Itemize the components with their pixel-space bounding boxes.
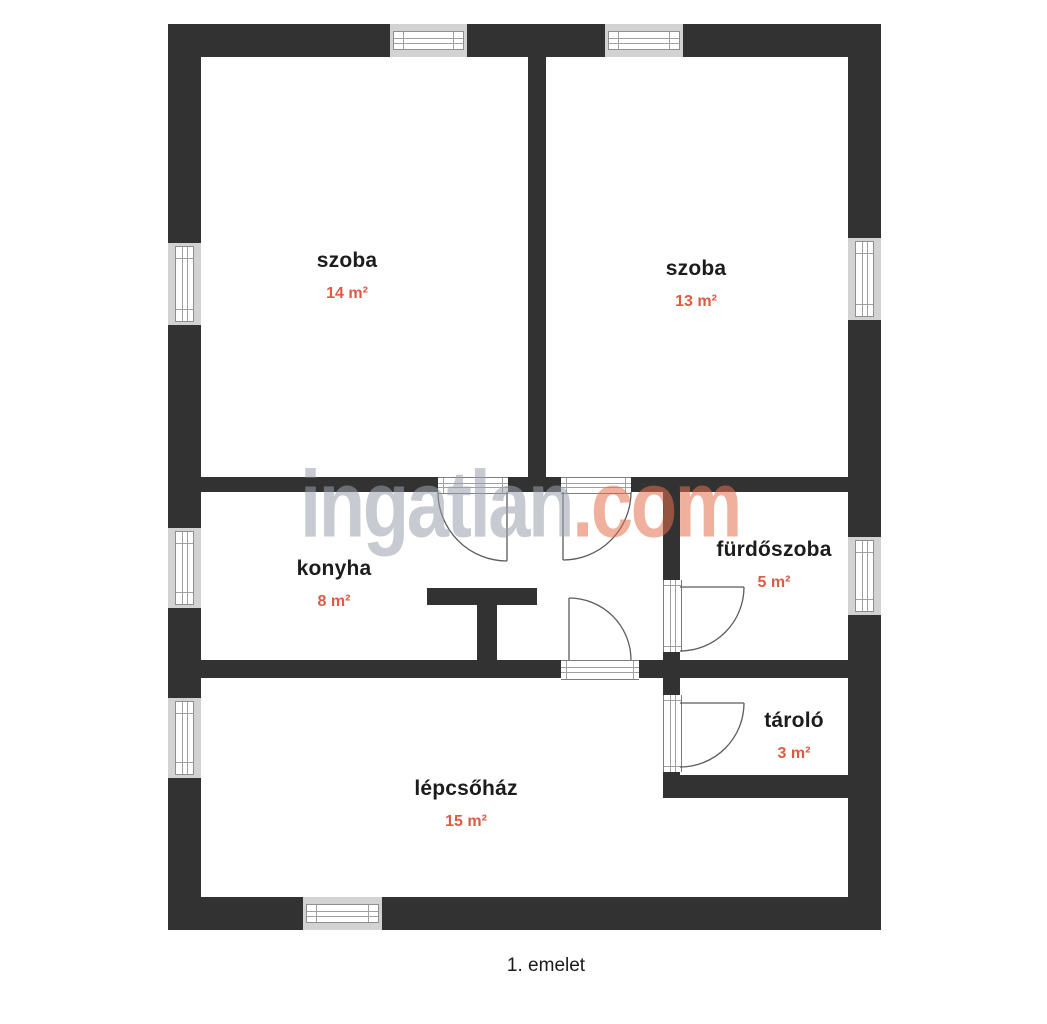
- room-name: szoba: [317, 249, 378, 273]
- window-mullion: [176, 592, 193, 593]
- window-mullion: [176, 258, 193, 259]
- room-label-szoba-14: szoba 14 m²: [317, 249, 378, 303]
- window-mullion: [856, 253, 873, 254]
- watermark-brand-text: ingatlan: [300, 452, 572, 558]
- room-label-szoba-13: szoba 13 m²: [666, 257, 727, 311]
- window-mullion: [856, 599, 873, 600]
- window-mullion: [670, 695, 671, 772]
- door-opening: [561, 660, 639, 680]
- wall-segment: [427, 588, 537, 605]
- room-area: 13 m²: [666, 293, 727, 311]
- window-mullion: [176, 762, 193, 763]
- window-mullion: [664, 766, 681, 767]
- window-mullion: [633, 661, 634, 679]
- window-mullion: [176, 309, 193, 310]
- room-area: 14 m²: [317, 285, 378, 303]
- window-frame: [175, 531, 194, 605]
- floor-caption: 1. emelet: [507, 955, 585, 977]
- window: [848, 537, 881, 615]
- window-frame: [175, 246, 194, 322]
- window: [390, 24, 467, 57]
- window-mullion: [670, 580, 671, 652]
- door-opening: [663, 695, 682, 772]
- window-mullion: [316, 905, 317, 922]
- window: [168, 528, 201, 608]
- window-mullion: [664, 585, 681, 586]
- window: [303, 897, 382, 930]
- window-mullion: [176, 543, 193, 544]
- wall-segment: [477, 605, 497, 660]
- room-label-lepcsohaz: lépcsőház 15 m²: [414, 777, 517, 831]
- room-label-tarolo: tároló 3 m²: [764, 709, 824, 763]
- room-name: tároló: [764, 709, 824, 733]
- window-mullion: [368, 905, 369, 922]
- wall-segment: [528, 57, 546, 477]
- window-mullion: [664, 700, 681, 701]
- window-mullion: [403, 32, 404, 49]
- room-name: konyha: [297, 557, 372, 581]
- window-mullion: [453, 32, 454, 49]
- window: [168, 698, 201, 778]
- floorplan-canvas: szoba 14 m² szoba 13 m² konyha 8 m² fürd…: [0, 0, 1047, 1024]
- window-mullion: [664, 646, 681, 647]
- window-mullion: [561, 672, 639, 673]
- window-mullion: [618, 32, 619, 49]
- window-mullion: [856, 552, 873, 553]
- window-mullion: [669, 32, 670, 49]
- window: [848, 238, 881, 320]
- window-mullion: [176, 713, 193, 714]
- watermark-tld-text: .com: [572, 452, 740, 558]
- window-mullion: [675, 695, 676, 772]
- room-name: lépcsőház: [414, 777, 517, 801]
- wall-segment: [848, 24, 881, 930]
- window-frame: [175, 701, 194, 775]
- window-frame: [306, 904, 379, 923]
- window: [605, 24, 683, 57]
- wall-segment: [168, 24, 201, 930]
- room-area: 5 m²: [716, 574, 831, 592]
- window-frame: [855, 241, 874, 317]
- wall-segment: [168, 897, 881, 930]
- room-label-konyha: konyha 8 m²: [297, 557, 372, 611]
- wall-segment: [663, 652, 680, 695]
- window-mullion: [566, 661, 567, 679]
- room-area: 8 m²: [297, 593, 372, 611]
- wall-segment: [663, 775, 848, 798]
- room-area: 15 m²: [414, 813, 517, 831]
- window-frame: [855, 540, 874, 612]
- door-arc: [680, 703, 744, 767]
- window-frame: [393, 31, 464, 50]
- room-name: szoba: [666, 257, 727, 281]
- window: [168, 243, 201, 325]
- window-mullion: [675, 580, 676, 652]
- room-area: 3 m²: [764, 745, 824, 763]
- door-arc: [680, 587, 744, 651]
- door-opening: [663, 580, 682, 652]
- ingatlan-watermark: ingatlan.com: [300, 451, 740, 560]
- window-frame: [608, 31, 680, 50]
- window-mullion: [561, 667, 639, 668]
- wall-segment: [201, 660, 561, 678]
- wall-segment: [168, 24, 881, 57]
- window-mullion: [856, 304, 873, 305]
- door-arc: [569, 598, 631, 660]
